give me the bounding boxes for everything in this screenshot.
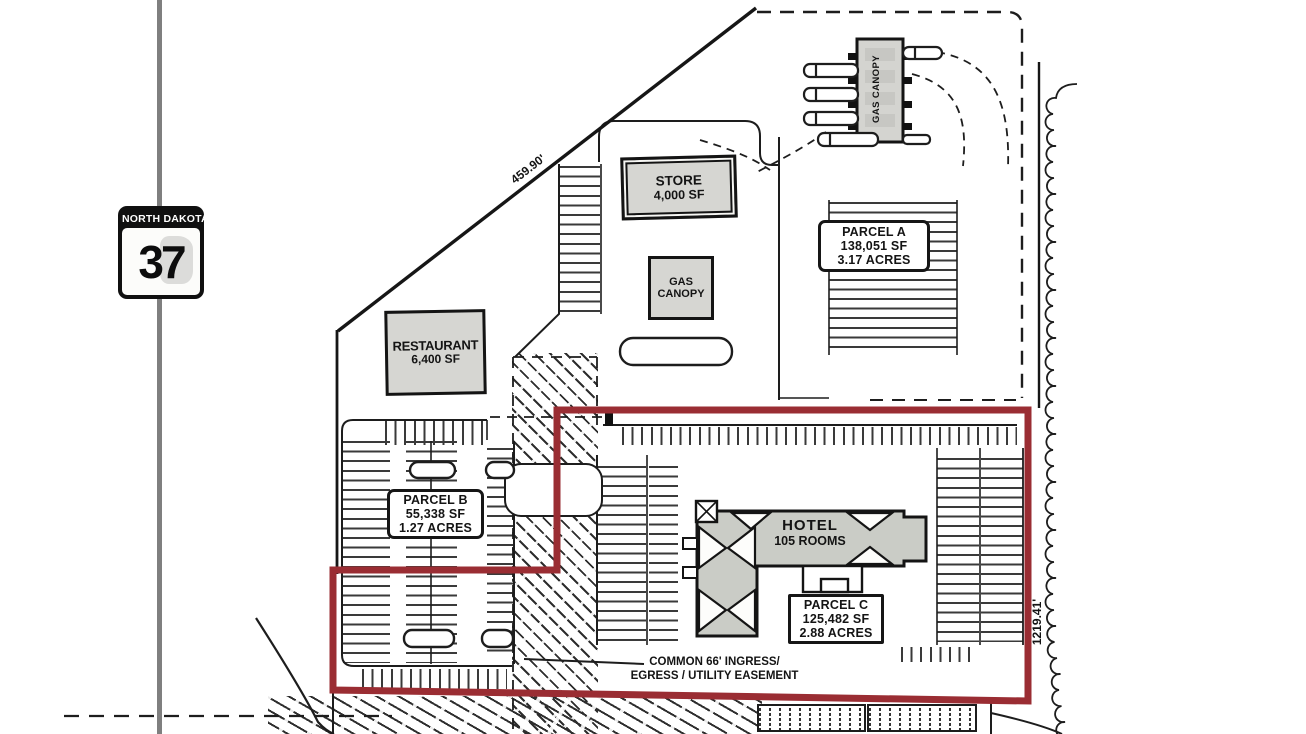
hotel-entry-porte-cochere <box>803 566 862 592</box>
gas-canopy-north-label: GAS CANOPY <box>871 54 889 124</box>
future-parking-block-2 <box>867 704 977 732</box>
hotel-label: HOTEL 105 ROOMS <box>745 517 875 548</box>
linework-layer <box>0 0 1306 734</box>
gas-canopy-line1: GAS <box>651 276 711 288</box>
hotel-stair-tower <box>696 501 717 522</box>
parcel-a-sf: 138,051 SF <box>821 239 927 253</box>
parcel-b-name: PARCEL B <box>390 493 481 507</box>
future-parking-block-1 <box>757 704 866 732</box>
parcel-a-acres: 3.17 ACRES <box>821 253 927 267</box>
site-plan: STORE 4,000 SF GAS CANOPY RESTAURANT 6,4… <box>0 0 1306 734</box>
parcel-c-acres: 2.88 ACRES <box>791 626 881 640</box>
parcel-c-sf: 125,482 SF <box>791 612 881 626</box>
easement-note: COMMON 66' INGRESS/ EGRESS / UTILITY EAS… <box>592 656 837 683</box>
dimension-east: 1219.41' <box>1030 589 1044 655</box>
hotel-name: HOTEL <box>745 517 875 534</box>
parcel-a-name: PARCEL A <box>821 225 927 239</box>
sign-route-number: 37 <box>138 239 183 285</box>
gas-canopy-line2: CANOPY <box>651 288 711 300</box>
parcel-b-label: PARCEL B 55,338 SF 1.27 ACRES <box>387 489 484 539</box>
store-building: STORE 4,000 SF <box>620 154 738 220</box>
highway-route-sign: NORTH DAKOTA 37 <box>118 206 204 299</box>
hotel-lot-entry-island <box>605 413 613 426</box>
sign-state-name: NORTH DAKOTA <box>122 209 200 228</box>
restaurant-building: RESTAURANT 6,400 SF <box>384 309 486 396</box>
tree-line <box>1045 84 1077 734</box>
easement-line1: COMMON 66' INGRESS/ <box>592 656 837 670</box>
parcel-b-sf: 55,338 SF <box>390 507 481 521</box>
parcel-c-name: PARCEL C <box>791 598 881 612</box>
parcel-a-label: PARCEL A 138,051 SF 3.17 ACRES <box>818 220 930 272</box>
restaurant-area: 6,400 SF <box>388 352 483 367</box>
hotel-rooms: 105 ROOMS <box>745 534 875 548</box>
store-area: 4,000 SF <box>624 187 734 204</box>
gas-canopy-building: GAS CANOPY <box>648 256 714 320</box>
parcel-b-acres: 1.27 ACRES <box>390 521 481 535</box>
easement-line2: EGRESS / UTILITY EASEMENT <box>592 670 837 684</box>
hotel-side-stubs <box>683 538 697 578</box>
parcel-c-label: PARCEL C 125,482 SF 2.88 ACRES <box>788 594 884 644</box>
sign-panel: 37 <box>122 228 200 295</box>
